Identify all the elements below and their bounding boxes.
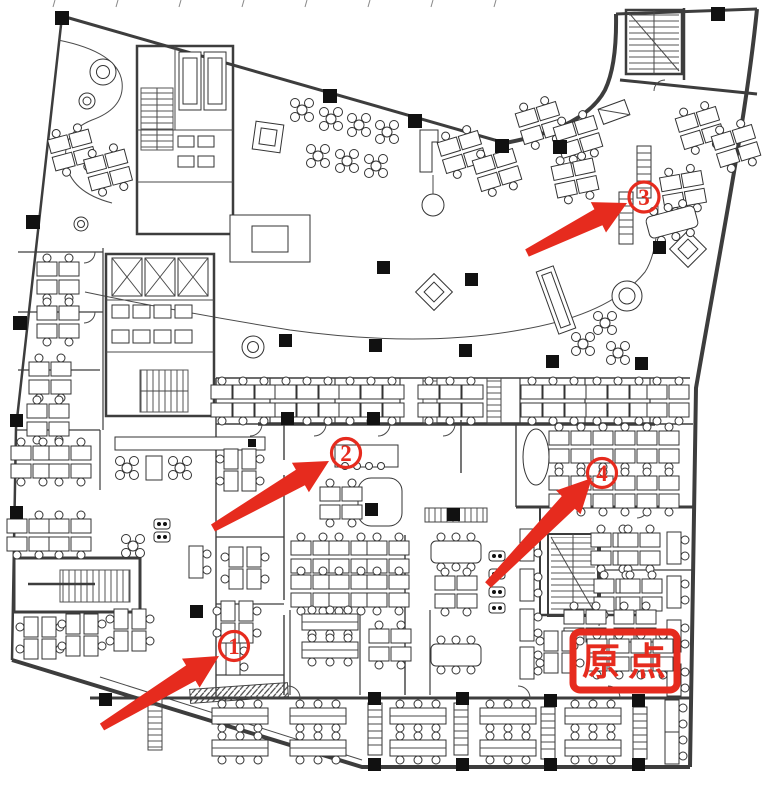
floor-plan-page: 1 2 3 4 原点 [0,0,771,785]
marker-2-label: 2 [340,441,352,466]
marker-1-label: 1 [228,634,240,659]
origin-label: 原点 [582,640,674,684]
stair-elevator-cores [14,10,682,616]
marker-3-arrow-icon [525,202,627,257]
marker-4-label: 4 [596,461,608,486]
marker-3-label: 3 [638,185,650,210]
floor-plan-drawing: 1 2 3 4 原点 [0,0,771,785]
grid-tick-marks [53,0,496,7]
